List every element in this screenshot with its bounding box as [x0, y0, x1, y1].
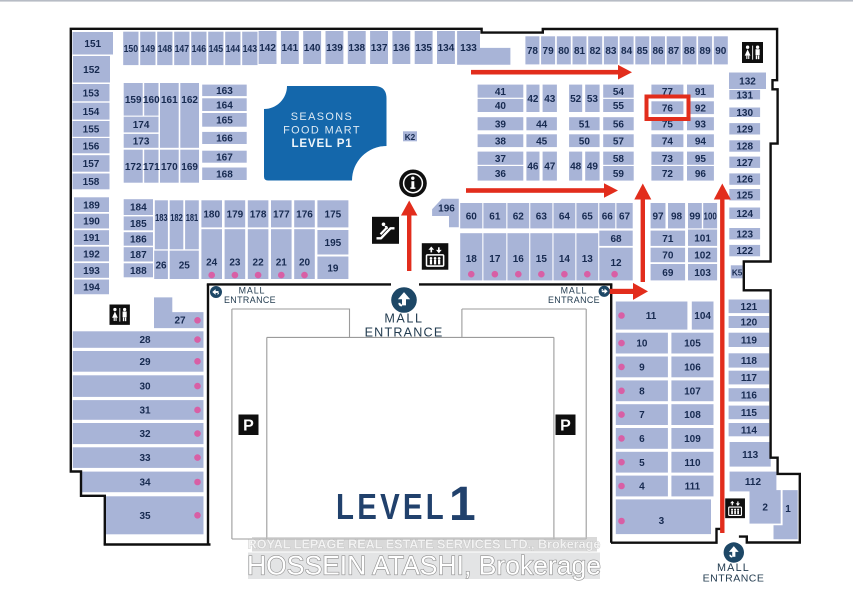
svg-text:124: 124	[736, 209, 753, 220]
svg-text:107: 107	[684, 386, 701, 397]
svg-text:ENTRANCE: ENTRANCE	[365, 326, 444, 340]
svg-text:173: 173	[133, 136, 150, 147]
svg-text:130: 130	[736, 108, 753, 119]
svg-text:66: 66	[602, 211, 614, 222]
svg-text:143: 143	[243, 44, 258, 55]
svg-text:186: 186	[130, 235, 147, 246]
svg-text:104: 104	[694, 311, 711, 322]
svg-text:126: 126	[736, 175, 753, 186]
svg-text:K2: K2	[405, 133, 416, 142]
svg-text:27: 27	[174, 316, 186, 327]
svg-text:111: 111	[685, 482, 701, 493]
svg-text:159: 159	[125, 95, 142, 106]
svg-text:146: 146	[192, 44, 207, 55]
svg-text:141: 141	[282, 43, 299, 54]
svg-text:117: 117	[741, 373, 758, 384]
svg-text:137: 137	[371, 43, 388, 54]
svg-text:191: 191	[83, 233, 100, 244]
svg-text:42: 42	[527, 94, 539, 105]
svg-text:136: 136	[393, 43, 410, 54]
svg-text:116: 116	[741, 390, 758, 401]
svg-text:35: 35	[139, 511, 151, 522]
svg-text:23: 23	[229, 258, 241, 269]
svg-text:192: 192	[83, 250, 100, 261]
svg-text:63: 63	[536, 211, 548, 222]
svg-text:170: 170	[161, 162, 178, 173]
svg-text:71: 71	[662, 234, 674, 245]
svg-text:58: 58	[613, 154, 625, 165]
svg-text:190: 190	[83, 217, 100, 228]
svg-text:121: 121	[741, 302, 758, 313]
svg-text:95: 95	[695, 154, 707, 165]
svg-text:1: 1	[449, 478, 476, 531]
svg-text:4: 4	[639, 482, 645, 493]
svg-text:114: 114	[741, 425, 758, 436]
svg-text:29: 29	[139, 357, 151, 368]
svg-text:59: 59	[613, 169, 625, 180]
svg-text:164: 164	[216, 100, 233, 111]
svg-text:54: 54	[613, 87, 625, 98]
svg-text:134: 134	[438, 43, 455, 54]
svg-text:68: 68	[610, 234, 622, 245]
svg-text:74: 74	[662, 136, 674, 147]
svg-text:167: 167	[216, 152, 233, 163]
svg-text:46: 46	[527, 162, 539, 173]
svg-text:139: 139	[326, 43, 343, 54]
svg-text:144: 144	[226, 44, 241, 55]
svg-text:87: 87	[668, 46, 680, 57]
svg-text:28: 28	[139, 335, 151, 346]
svg-text:12: 12	[610, 258, 622, 269]
svg-text:92: 92	[695, 103, 707, 114]
svg-text:81: 81	[574, 46, 586, 57]
svg-text:LEVEL: LEVEL	[336, 486, 447, 527]
svg-text:108: 108	[684, 410, 701, 421]
svg-text:174: 174	[133, 120, 150, 131]
svg-text:33: 33	[139, 453, 151, 464]
svg-text:76: 76	[662, 103, 674, 114]
svg-text:19: 19	[327, 263, 339, 274]
svg-text:193: 193	[83, 266, 100, 277]
svg-text:31: 31	[139, 406, 151, 417]
svg-text:93: 93	[695, 119, 707, 130]
svg-text:152: 152	[83, 65, 100, 76]
svg-text:1: 1	[785, 504, 791, 515]
svg-text:51: 51	[579, 119, 591, 130]
svg-text:38: 38	[495, 136, 507, 147]
svg-text:11: 11	[646, 311, 657, 322]
svg-text:21: 21	[276, 258, 288, 269]
svg-text:90: 90	[715, 46, 727, 57]
svg-text:24: 24	[206, 258, 218, 269]
svg-text:91: 91	[695, 87, 707, 98]
svg-text:194: 194	[83, 283, 100, 294]
svg-text:65: 65	[582, 211, 594, 222]
svg-text:57: 57	[613, 136, 625, 147]
svg-text:133: 133	[460, 43, 477, 54]
svg-text:25: 25	[179, 260, 191, 271]
svg-text:LEVEL P1: LEVEL P1	[292, 137, 353, 150]
svg-text:78: 78	[527, 46, 539, 57]
svg-text:18: 18	[466, 254, 478, 265]
svg-text:15: 15	[536, 254, 548, 265]
svg-text:3: 3	[659, 516, 665, 527]
svg-text:171: 171	[143, 162, 160, 173]
svg-text:180: 180	[203, 209, 220, 220]
svg-text:102: 102	[694, 251, 711, 262]
svg-text:ENTRANCE: ENTRANCE	[703, 573, 765, 585]
svg-text:151: 151	[84, 39, 101, 50]
svg-text:44: 44	[536, 119, 548, 130]
svg-text:89: 89	[700, 46, 712, 57]
svg-text:169: 169	[181, 162, 198, 173]
svg-text:64: 64	[559, 211, 571, 222]
svg-text:154: 154	[83, 107, 100, 118]
svg-text:118: 118	[741, 356, 758, 367]
svg-text:96: 96	[695, 169, 707, 180]
svg-text:100: 100	[704, 211, 718, 222]
svg-text:P: P	[243, 418, 254, 435]
svg-text:115: 115	[741, 408, 758, 419]
svg-text:HOSSEIN ATASHI, Brokerage: HOSSEIN ATASHI, Brokerage	[247, 551, 601, 581]
svg-text:55: 55	[613, 101, 625, 112]
svg-text:37: 37	[495, 154, 507, 165]
svg-text:157: 157	[83, 159, 100, 170]
svg-text:132: 132	[739, 76, 756, 87]
svg-text:98: 98	[671, 211, 683, 222]
svg-text:128: 128	[736, 142, 753, 153]
svg-text:67: 67	[619, 211, 631, 222]
svg-text:175: 175	[325, 209, 342, 220]
svg-text:22: 22	[253, 258, 265, 269]
svg-text:109: 109	[684, 434, 701, 445]
svg-text:72: 72	[662, 169, 674, 180]
svg-text:138: 138	[348, 43, 365, 54]
svg-text:10: 10	[636, 339, 648, 350]
svg-text:82: 82	[590, 46, 602, 57]
svg-text:83: 83	[605, 46, 617, 57]
svg-text:ENTRANCE: ENTRANCE	[224, 295, 276, 305]
svg-text:162: 162	[181, 95, 198, 106]
svg-text:16: 16	[513, 254, 525, 265]
svg-text:113: 113	[742, 450, 759, 461]
svg-text:112: 112	[745, 477, 762, 488]
svg-text:52: 52	[570, 94, 582, 105]
svg-text:181: 181	[186, 213, 199, 224]
svg-text:123: 123	[736, 229, 753, 240]
svg-text:53: 53	[587, 94, 599, 105]
svg-text:183: 183	[155, 213, 168, 224]
svg-text:163: 163	[216, 86, 233, 97]
svg-text:17: 17	[489, 254, 501, 265]
svg-text:6: 6	[639, 434, 645, 445]
svg-text:131: 131	[736, 90, 753, 101]
svg-text:177: 177	[273, 209, 290, 220]
svg-text:48: 48	[570, 162, 582, 173]
svg-text:45: 45	[536, 136, 548, 147]
svg-text:195: 195	[325, 238, 342, 249]
svg-text:86: 86	[652, 46, 664, 57]
svg-text:182: 182	[170, 213, 183, 224]
svg-text:20: 20	[299, 258, 311, 269]
svg-text:69: 69	[662, 268, 674, 279]
svg-text:168: 168	[216, 169, 233, 180]
svg-text:189: 189	[83, 200, 100, 211]
svg-text:49: 49	[587, 162, 599, 173]
svg-text:161: 161	[161, 95, 178, 106]
svg-text:156: 156	[83, 141, 100, 152]
svg-text:101: 101	[694, 233, 711, 244]
svg-text:7: 7	[639, 410, 645, 421]
svg-text:196: 196	[438, 204, 455, 215]
svg-text:103: 103	[694, 268, 711, 279]
svg-text:148: 148	[158, 44, 173, 55]
svg-text:160: 160	[143, 95, 160, 106]
svg-text:179: 179	[227, 209, 244, 220]
svg-text:47: 47	[544, 162, 556, 173]
svg-text:165: 165	[216, 115, 233, 126]
svg-text:36: 36	[495, 169, 507, 180]
svg-text:80: 80	[558, 46, 570, 57]
svg-text:178: 178	[250, 209, 267, 220]
svg-text:41: 41	[495, 87, 507, 98]
svg-text:50: 50	[579, 136, 591, 147]
svg-text:153: 153	[83, 88, 100, 99]
svg-text:73: 73	[662, 154, 674, 165]
svg-text:61: 61	[489, 211, 501, 222]
svg-text:9: 9	[639, 363, 645, 374]
svg-text:129: 129	[736, 124, 753, 135]
svg-text:62: 62	[513, 211, 525, 222]
svg-text:187: 187	[130, 250, 147, 261]
svg-text:60: 60	[466, 211, 478, 222]
svg-text:32: 32	[139, 429, 151, 440]
svg-text:176: 176	[296, 209, 313, 220]
svg-text:40: 40	[495, 101, 507, 112]
svg-text:FOOD MART: FOOD MART	[283, 125, 361, 137]
svg-text:122: 122	[736, 246, 753, 257]
svg-text:30: 30	[139, 382, 151, 393]
svg-text:MALL: MALL	[384, 312, 423, 326]
svg-text:13: 13	[582, 254, 594, 265]
svg-text:85: 85	[637, 46, 649, 57]
svg-text:125: 125	[736, 190, 753, 201]
svg-text:119: 119	[741, 335, 758, 346]
svg-text:SEASONS: SEASONS	[291, 111, 353, 123]
svg-text:94: 94	[695, 136, 707, 147]
svg-text:ROYAL LEPAGE REAL ESTATE SERVI: ROYAL LEPAGE REAL ESTATE SERVICES LTD., …	[248, 538, 601, 552]
svg-text:166: 166	[216, 134, 233, 145]
svg-text:39: 39	[495, 119, 507, 130]
svg-text:184: 184	[130, 203, 147, 214]
svg-text:26: 26	[155, 260, 167, 271]
svg-text:97: 97	[652, 211, 664, 222]
svg-text:5: 5	[639, 458, 645, 469]
svg-text:120: 120	[741, 318, 758, 329]
svg-text:ENTRANCE: ENTRANCE	[548, 295, 600, 305]
svg-text:149: 149	[141, 44, 156, 55]
svg-text:105: 105	[684, 339, 701, 350]
svg-text:145: 145	[209, 44, 224, 55]
svg-text:110: 110	[684, 458, 701, 469]
svg-text:84: 84	[621, 46, 633, 57]
svg-text:70: 70	[662, 251, 674, 262]
svg-text:34: 34	[139, 478, 151, 489]
svg-text:127: 127	[736, 158, 753, 169]
svg-text:P: P	[560, 418, 571, 435]
svg-text:147: 147	[175, 44, 190, 55]
svg-text:K5: K5	[732, 268, 743, 277]
svg-text:172: 172	[125, 162, 142, 173]
svg-text:43: 43	[544, 94, 556, 105]
svg-text:158: 158	[83, 177, 100, 188]
svg-text:MALL: MALL	[239, 286, 266, 296]
svg-text:MALL: MALL	[561, 286, 588, 296]
svg-text:140: 140	[304, 43, 321, 54]
svg-text:155: 155	[83, 125, 100, 136]
svg-text:142: 142	[259, 43, 276, 54]
svg-text:135: 135	[415, 43, 432, 54]
svg-text:14: 14	[559, 254, 571, 265]
svg-text:88: 88	[684, 46, 696, 57]
svg-text:188: 188	[130, 266, 147, 277]
svg-text:56: 56	[613, 119, 625, 130]
svg-text:79: 79	[543, 46, 555, 57]
svg-text:8: 8	[639, 386, 645, 397]
svg-text:150: 150	[124, 44, 139, 55]
svg-text:99: 99	[689, 211, 701, 222]
svg-text:185: 185	[130, 219, 147, 230]
svg-text:2: 2	[762, 502, 768, 513]
svg-text:106: 106	[684, 363, 701, 374]
